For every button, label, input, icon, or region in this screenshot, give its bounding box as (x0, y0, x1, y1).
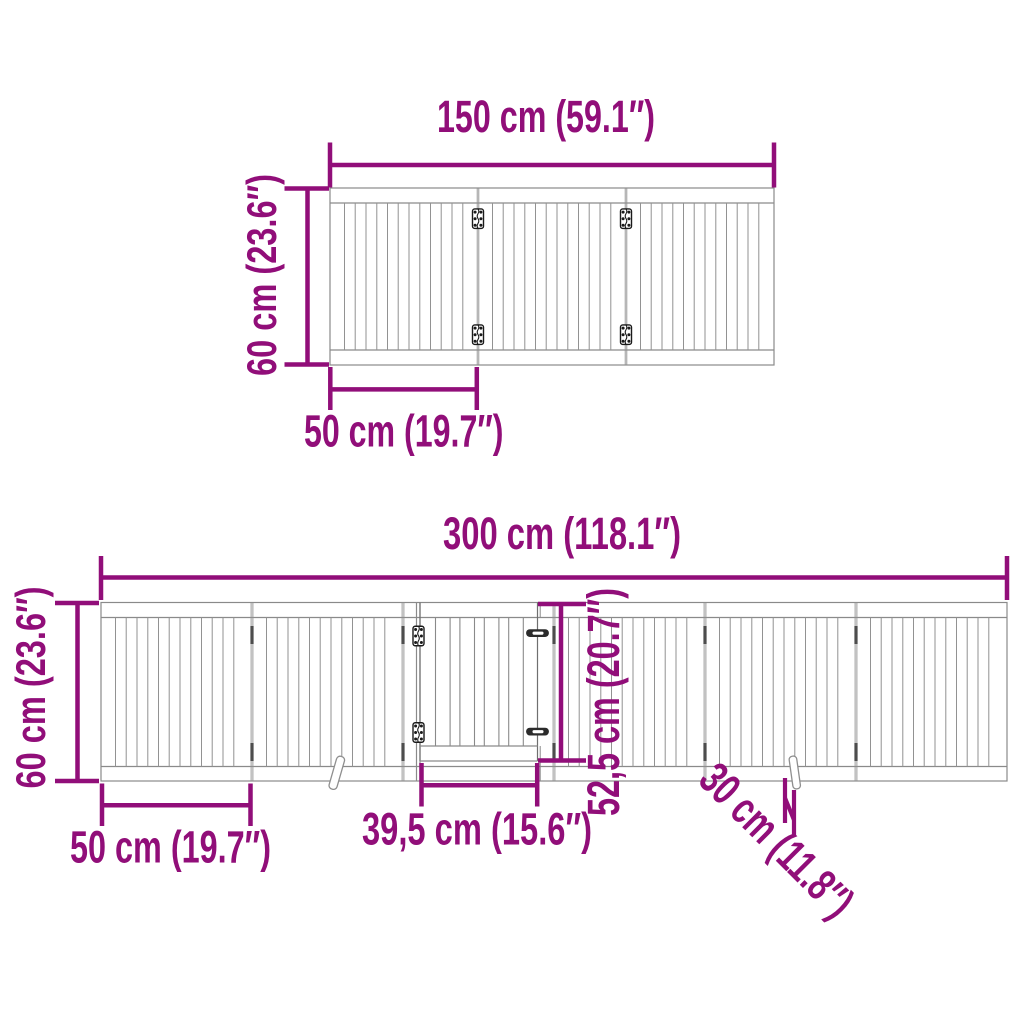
svg-text:50 cm (19.7″): 50 cm (19.7″) (304, 406, 504, 457)
svg-text:60 cm (23.6″): 60 cm (23.6″) (238, 174, 285, 376)
svg-text:150 cm (59.1″): 150 cm (59.1″) (437, 91, 655, 142)
svg-text:300 cm (118.1″): 300 cm (118.1″) (443, 508, 681, 559)
svg-text:60 cm (23.6″): 60 cm (23.6″) (7, 587, 54, 789)
svg-text:52,5 cm (20.7″): 52,5 cm (20.7″) (578, 588, 629, 816)
svg-text:39,5 cm (15.6″): 39,5 cm (15.6″) (362, 804, 592, 855)
svg-text:50 cm (19.7″): 50 cm (19.7″) (70, 822, 271, 873)
